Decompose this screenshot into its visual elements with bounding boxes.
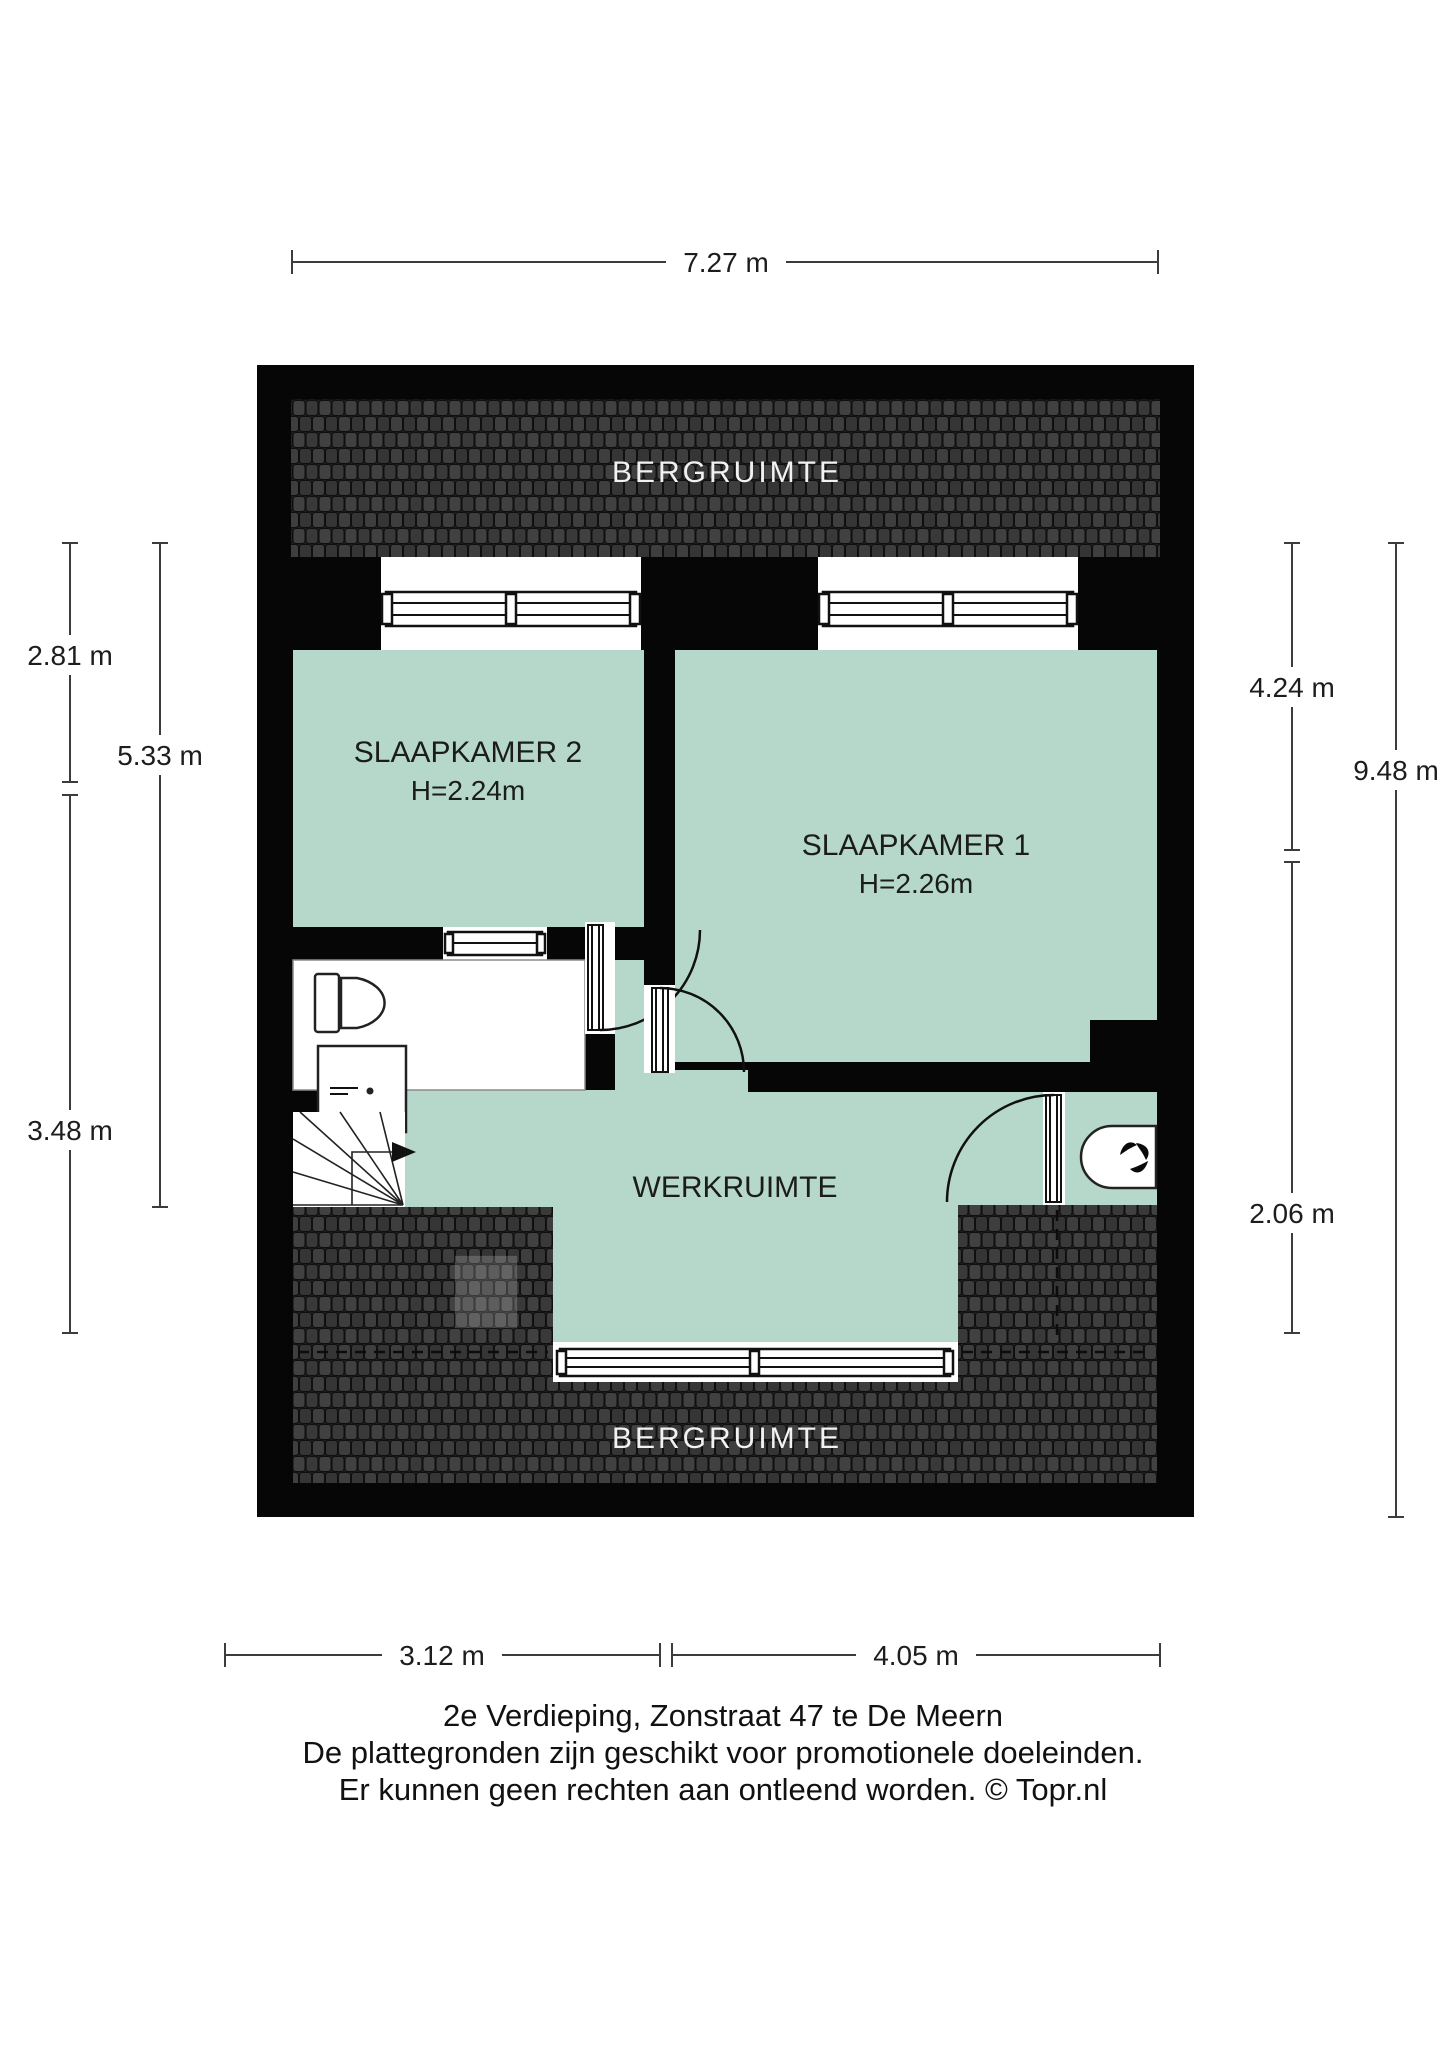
dimension-bottom-left: 3.12 m	[225, 1635, 660, 1675]
slaapkamer1-height: H=2.26m	[859, 868, 973, 899]
ventilation-unit-icon	[1081, 1126, 1156, 1188]
dim-right-upper-label: 4.24 m	[1249, 672, 1335, 703]
roof-bottom-right	[958, 1205, 1157, 1483]
dimension-right-lower: 2.06 m	[1232, 862, 1352, 1333]
footer-disclaimer-1: De plattegronden zijn geschikt voor prom…	[303, 1735, 1144, 1770]
window-werkruimte	[553, 1342, 958, 1382]
stairs	[293, 1112, 416, 1207]
slaapkamer1-label: SLAAPKAMER 1	[802, 829, 1030, 862]
dim-left-upper-label: 2.81 m	[27, 640, 113, 671]
dimension-right-full: 9.48 m	[1336, 543, 1447, 1517]
window-slaapkamer1	[818, 557, 1078, 650]
slaapkamer2-label: SLAAPKAMER 2	[354, 736, 582, 769]
dimension-right-upper: 4.24 m	[1232, 543, 1352, 850]
dim-left-full-label: 5.33 m	[117, 740, 203, 771]
dim-left-lower-label: 3.48 m	[27, 1115, 113, 1146]
bergruimte-bottom-label: BERGRUIMTE	[612, 1422, 842, 1455]
dim-top-label: 7.27 m	[683, 247, 769, 278]
skylight	[455, 1256, 517, 1328]
roof-bottom-left	[293, 1207, 553, 1483]
slaapkamer2-height: H=2.24m	[411, 775, 525, 806]
footer-title: 2e Verdieping, Zonstraat 47 te De Meern	[443, 1698, 1003, 1733]
footer-disclaimer-2: Er kunnen geen rechten aan ontleend word…	[339, 1772, 1108, 1807]
window-bathroom-transom	[443, 927, 547, 960]
dimension-top-width: 7.27 m	[292, 240, 1158, 282]
window-slaapkamer2	[381, 557, 641, 650]
werkruimte-label: WERKRUIMTE	[633, 1171, 838, 1204]
dimension-bottom-right: 4.05 m	[672, 1635, 1160, 1675]
wall-stub-divider	[644, 960, 675, 988]
dim-right-full-label: 9.48 m	[1353, 755, 1439, 786]
dim-bottom-left-label: 3.12 m	[399, 1640, 485, 1671]
floorplan-canvas: 7.27 m 2.81 m 3.48 m 5.33 m 4.24 m 2.06 …	[0, 0, 1447, 2048]
bergruimte-top-label: BERGRUIMTE	[612, 456, 842, 489]
dim-right-lower-label: 2.06 m	[1249, 1198, 1335, 1229]
dim-bottom-right-label: 4.05 m	[873, 1640, 959, 1671]
dimension-left-lower: 3.48 m	[10, 795, 130, 1333]
wall-notch-slaapkamer1	[1090, 1020, 1157, 1062]
